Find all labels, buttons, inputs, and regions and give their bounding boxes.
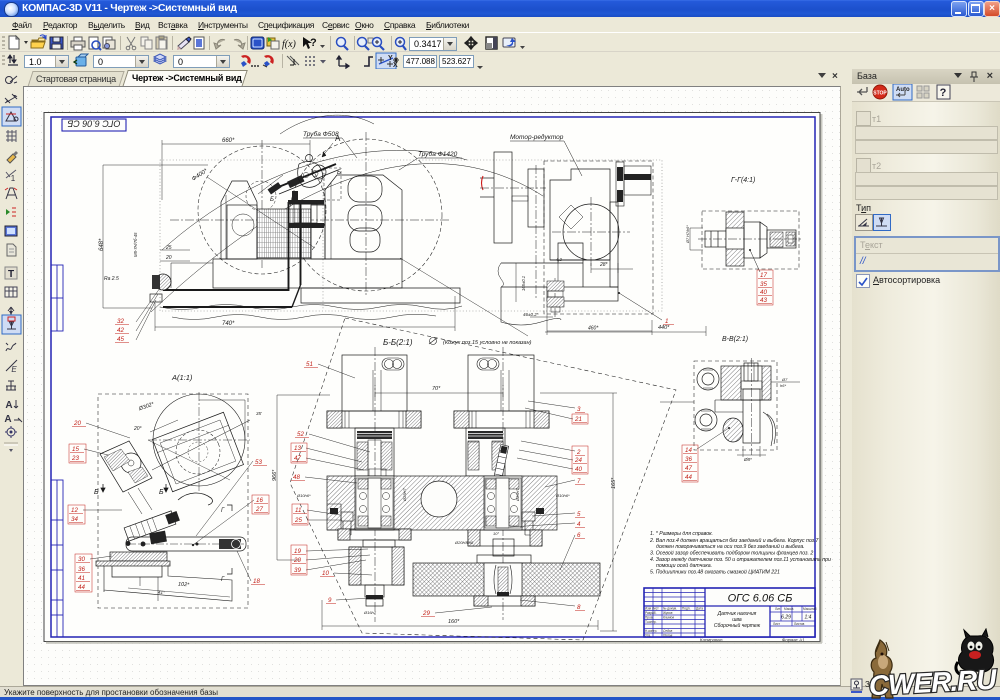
svg-text:20°: 20°	[133, 426, 142, 432]
svg-text:14: 14	[685, 447, 692, 454]
svg-text:5. Подшипники поз.48 смазать с: 5. Подшипники поз.48 смазать смазкой ЦИА…	[650, 569, 780, 576]
svg-text:А: А	[4, 414, 11, 425]
svg-text:Ø8*: Ø8*	[743, 457, 752, 462]
svg-text:12: 12	[71, 507, 78, 514]
svg-text:А(1:1): А(1:1)	[171, 373, 193, 382]
svg-text:Изм Лист: Изм Лист	[645, 607, 659, 611]
svg-text:660*: 660*	[222, 138, 235, 144]
svg-text:40: 40	[760, 289, 767, 296]
svg-text:Б: Б	[337, 170, 341, 176]
svg-text:48: 48	[293, 474, 300, 481]
svg-text:20: 20	[73, 420, 81, 427]
svg-text:46±0.2*: 46±0.2*	[523, 312, 539, 317]
svg-text:52: 52	[297, 431, 304, 438]
svg-text:10°: 10°	[493, 531, 499, 536]
svg-text:19: 19	[294, 548, 301, 555]
svg-text:CWER.RU: CWER.RU	[868, 664, 998, 700]
svg-text:42: 42	[117, 327, 124, 334]
svg-text:Утв.: Утв.	[645, 634, 651, 638]
svg-text:25: 25	[294, 517, 302, 524]
svg-text:Копировал: Копировал	[700, 638, 723, 643]
svg-text:34: 34	[71, 516, 78, 523]
svg-text:1: 1	[665, 318, 668, 325]
svg-text:29: 29	[422, 610, 430, 617]
svg-text:Пров.: Пров.	[645, 616, 654, 620]
svg-text:Лит.: Лит.	[775, 607, 781, 611]
svg-text:4: 4	[577, 521, 581, 528]
svg-text:25: 25	[165, 245, 172, 251]
svg-text:h6*: h6*	[780, 383, 786, 388]
svg-text:Ø25H7: Ø25H7	[515, 488, 520, 502]
svg-text:STOP: STOP	[873, 91, 887, 97]
svg-text:10: 10	[322, 570, 329, 577]
svg-text:36: 36	[685, 456, 692, 463]
svg-text:Ø25H7: Ø25H7	[402, 488, 407, 502]
svg-text:15: 15	[72, 446, 79, 453]
svg-text:165±0.1: 165±0.1	[521, 276, 526, 291]
svg-text:Листов: Листов	[794, 622, 805, 626]
svg-text:Ø7 H7/h6*: Ø7 H7/h6*	[686, 225, 690, 244]
svg-text:Auto: Auto	[896, 87, 910, 93]
svg-text:Климов: Климов	[663, 616, 674, 620]
svg-text:ОГС 6.06 СБ: ОГС 6.06 СБ	[67, 119, 120, 129]
svg-text:30: 30	[78, 556, 85, 563]
svg-text:Т.контр.: Т.контр.	[645, 620, 657, 624]
svg-text:3. Осевой зазор обеспечивать п: 3. Осевой зазор обеспечивать подбором то…	[650, 550, 813, 557]
svg-text:53: 53	[255, 459, 262, 466]
svg-text:440*: 440*	[658, 325, 670, 331]
svg-text:Ø16h7: Ø16h7	[363, 610, 377, 615]
svg-text:165*: 165*	[611, 477, 617, 489]
svg-text:70*: 70*	[432, 386, 441, 392]
svg-text:T: T	[8, 269, 14, 280]
svg-text:18: 18	[253, 578, 260, 585]
svg-text:помощи осей датчика.: помощи осей датчика.	[656, 562, 712, 569]
svg-text:Н.контр.: Н.контр.	[645, 629, 657, 633]
svg-text:Труба Ф508: Труба Ф508	[303, 130, 339, 138]
svg-text:44: 44	[78, 584, 85, 591]
svg-text:М8-7Н/7б-45: М8-7Н/7б-45	[133, 232, 138, 257]
svg-text:Б: Б	[94, 489, 99, 496]
svg-text:460*: 460*	[588, 326, 599, 332]
svg-text:Жуков: Жуков	[662, 611, 673, 615]
svg-text:2. Вал поз.4 должен вращаться: 2. Вал поз.4 должен вращаться без заедан…	[649, 537, 820, 544]
svg-text:8: 8	[577, 604, 581, 611]
svg-text:Мотор-редуктор: Мотор-редуктор	[510, 133, 564, 141]
svg-text:23: 23	[71, 455, 79, 462]
svg-text:ОГС 6.06 СБ: ОГС 6.06 СБ	[728, 593, 793, 605]
svg-text:16: 16	[256, 497, 263, 504]
svg-text:Труба Ф1420: Труба Ф1420	[418, 150, 458, 158]
svg-text:966*: 966*	[272, 469, 278, 481]
svg-text:Разраб.: Разраб.	[645, 611, 657, 615]
svg-text:45: 45	[117, 336, 124, 343]
svg-text:32: 32	[117, 318, 124, 325]
svg-text:35': 35'	[256, 411, 262, 416]
svg-text:3: 3	[577, 406, 581, 413]
svg-text:102*: 102*	[178, 582, 191, 589]
svg-text:6: 6	[577, 532, 581, 539]
svg-text:В-В(2:1): В-В(2:1)	[722, 336, 748, 343]
svg-text:36: 36	[78, 566, 85, 573]
svg-text:28*: 28*	[599, 262, 609, 268]
svg-text:20: 20	[293, 557, 301, 564]
svg-text:27: 27	[255, 506, 263, 513]
svg-text:Б: Б	[159, 489, 164, 496]
svg-text:24: 24	[574, 457, 582, 464]
svg-text:Ra 2.5: Ra 2.5	[104, 276, 119, 282]
svg-text:4,2: 4,2	[556, 257, 562, 262]
svg-text:1:4: 1:4	[805, 615, 812, 621]
svg-text:47: 47	[294, 455, 301, 462]
svg-text:Дата: Дата	[696, 607, 703, 611]
svg-text:47: 47	[685, 465, 692, 472]
svg-text:40: 40	[575, 466, 582, 473]
svg-text:44: 44	[685, 474, 692, 481]
svg-text:Б-Б(2:1): Б-Б(2:1)	[383, 338, 413, 347]
svg-text:Формат А1: Формат А1	[782, 638, 805, 643]
svg-text:Попов: Попов	[663, 634, 673, 638]
svg-text:должен поворачиваться на оси п: должен поворачиваться на оси поз.9 без з…	[656, 543, 805, 550]
svg-text:17: 17	[760, 272, 767, 279]
svg-text:(Кожух поз.15 условно не показ: (Кожух поз.15 условно не показан)	[443, 340, 532, 346]
svg-text:Подп.: Подп.	[682, 607, 691, 611]
svg-text:9: 9	[328, 597, 332, 604]
svg-text:Г-Г(4:1): Г-Г(4:1)	[731, 177, 755, 184]
svg-text:Лист: Лист	[773, 622, 780, 626]
svg-text:Ø20H8/h8: Ø20H8/h8	[454, 540, 474, 545]
svg-text:Ø7: Ø7	[781, 377, 788, 382]
svg-text:41: 41	[78, 575, 85, 582]
svg-text:51: 51	[306, 361, 313, 368]
svg-text:39: 39	[294, 567, 301, 574]
svg-text:№ докум.: № докум.	[663, 607, 677, 611]
svg-text:1. * Размеры для справок.: 1. * Размеры для справок.	[650, 531, 713, 537]
svg-text:35: 35	[760, 281, 767, 288]
svg-text:20: 20	[165, 255, 172, 261]
svg-text:Сборочный чертеж: Сборочный чертеж	[714, 622, 761, 629]
svg-text:7: 7	[577, 478, 581, 485]
svg-text:648*: 648*	[99, 238, 105, 251]
svg-text:5: 5	[577, 511, 581, 518]
svg-text:2: 2	[576, 449, 581, 456]
svg-text:41°: 41°	[158, 590, 165, 595]
svg-text:Ø10h6*: Ø10h6*	[555, 493, 570, 498]
svg-text:43: 43	[760, 297, 767, 304]
svg-text:740*: 740*	[222, 321, 235, 327]
svg-text:1: 1	[11, 174, 16, 183]
svg-text:Б: Б	[270, 197, 274, 203]
svg-text:11: 11	[295, 507, 301, 514]
svg-text:Масса: Масса	[784, 607, 794, 611]
svg-text:6.29: 6.29	[781, 615, 791, 621]
svg-text:13: 13	[294, 445, 301, 452]
svg-text:Седов: Седов	[663, 629, 673, 633]
svg-text:E: E	[11, 365, 17, 374]
svg-text:Масштаб: Масштаб	[803, 607, 817, 611]
svg-text:Ø10h6*: Ø10h6*	[296, 493, 311, 498]
svg-text:?: ?	[940, 87, 947, 99]
svg-text:А: А	[5, 400, 12, 411]
svg-text:160*: 160*	[448, 619, 460, 625]
svg-text:21: 21	[574, 416, 582, 423]
